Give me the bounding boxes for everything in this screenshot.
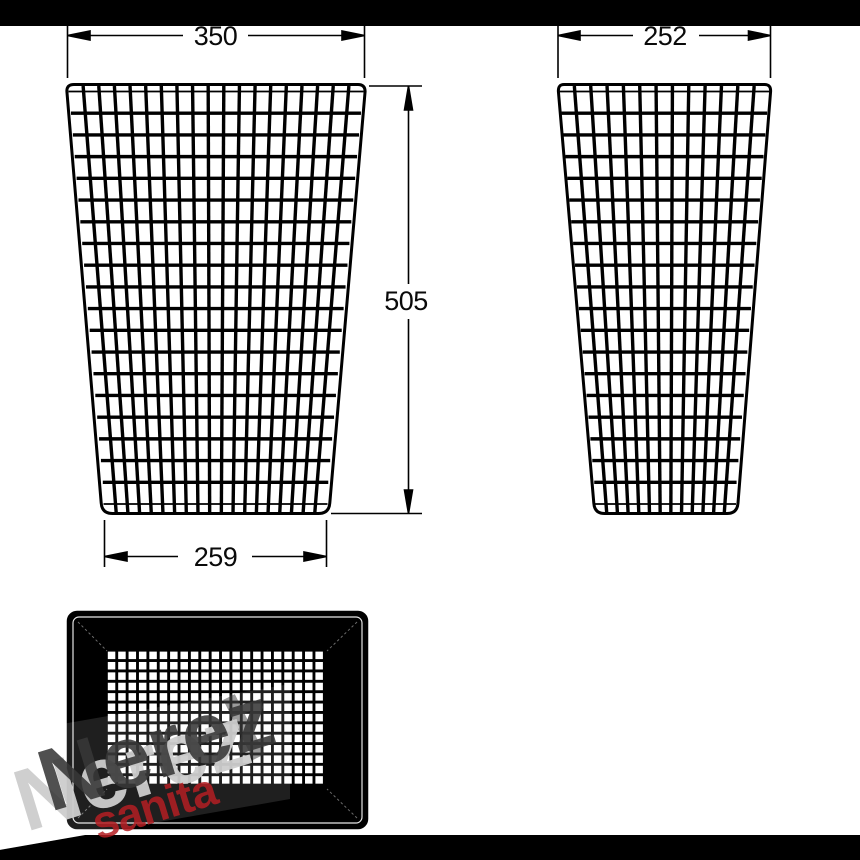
- mesh-hole: [170, 662, 178, 670]
- mesh-hole: [232, 652, 240, 660]
- mesh-hole: [129, 683, 137, 691]
- mesh-hole: [305, 652, 313, 660]
- mesh-hole: [160, 662, 168, 670]
- mesh-hole: [139, 652, 147, 660]
- mesh-hole: [295, 683, 303, 691]
- mesh-hole: [295, 766, 303, 774]
- mesh-hole: [118, 693, 126, 701]
- dimension-side-top-width: 252: [558, 21, 771, 78]
- mesh-hole: [305, 724, 313, 732]
- mesh-hole: [139, 683, 147, 691]
- mesh-hole: [129, 693, 137, 701]
- mesh-hole: [295, 704, 303, 712]
- mesh-hole: [149, 652, 157, 660]
- mesh-hole: [139, 672, 147, 680]
- front-view-basket: [67, 85, 365, 514]
- mesh-hole: [274, 652, 282, 660]
- mesh-hole: [315, 766, 323, 774]
- arrowhead-right-icon: [342, 31, 365, 40]
- mesh-hole: [264, 662, 272, 670]
- mesh-hole: [180, 672, 188, 680]
- mesh-wire: [208, 86, 209, 513]
- mesh-hole: [305, 662, 313, 670]
- mesh-wire: [671, 86, 673, 513]
- mesh-hole: [315, 755, 323, 763]
- mesh-hole: [108, 683, 116, 691]
- mesh-hole: [191, 652, 199, 660]
- mesh-hole: [315, 652, 323, 660]
- mesh-hole: [191, 672, 199, 680]
- mesh-hole: [295, 662, 303, 670]
- mesh-hole: [253, 652, 261, 660]
- mesh-hole: [305, 672, 313, 680]
- mesh-hole: [305, 776, 313, 784]
- arrowhead-right-icon: [749, 31, 771, 40]
- mesh-hole: [118, 662, 126, 670]
- mesh-hole: [295, 745, 303, 753]
- arrowhead-left-icon: [105, 552, 128, 561]
- mesh-hole: [108, 693, 116, 701]
- dimension-front-top-width: 350: [68, 21, 365, 78]
- mesh-hole: [315, 724, 323, 732]
- mesh-hole: [284, 652, 292, 660]
- mesh-hole: [160, 672, 168, 680]
- mesh-hole: [201, 652, 209, 660]
- mesh-hole: [108, 662, 116, 670]
- mesh-hole: [232, 662, 240, 670]
- mesh-hole: [295, 755, 303, 763]
- mesh-hole: [160, 652, 168, 660]
- mesh-hole: [160, 683, 168, 691]
- dimension-label-height: 505: [384, 286, 428, 316]
- mesh-hole: [180, 662, 188, 670]
- mesh-hole: [201, 662, 209, 670]
- mesh-hole: [305, 714, 313, 722]
- mesh-hole: [305, 745, 313, 753]
- mesh-hole: [212, 662, 220, 670]
- mesh-hole: [274, 672, 282, 680]
- mesh-hole: [243, 652, 251, 660]
- mesh-hole: [284, 672, 292, 680]
- arrowhead-down-icon: [405, 490, 413, 514]
- arrowhead-right-icon: [304, 552, 327, 561]
- mesh-hole: [222, 662, 230, 670]
- mesh-hole: [264, 672, 272, 680]
- mesh-hole: [295, 724, 303, 732]
- waste-basket-drawing: 350 252 505: [0, 0, 860, 860]
- mesh-hole: [118, 652, 126, 660]
- dimension-label-front-top-width: 350: [194, 21, 238, 51]
- side-view-basket: [558, 85, 770, 514]
- mesh-hole: [170, 652, 178, 660]
- mesh-hole: [295, 735, 303, 743]
- mesh-hole: [264, 652, 272, 660]
- mesh-hole: [305, 766, 313, 774]
- mesh-hole: [305, 683, 313, 691]
- mesh-hole: [315, 735, 323, 743]
- mesh-hole: [315, 662, 323, 670]
- mesh-hole: [139, 662, 147, 670]
- mesh-hole: [315, 693, 323, 701]
- mesh-hole: [305, 693, 313, 701]
- mesh-hole: [129, 652, 137, 660]
- mesh-hole: [315, 672, 323, 680]
- mesh-hole: [212, 652, 220, 660]
- mesh-hole: [295, 693, 303, 701]
- mesh-hole: [284, 662, 292, 670]
- mesh-hole: [274, 662, 282, 670]
- mesh-hole: [149, 672, 157, 680]
- mesh-hole: [315, 683, 323, 691]
- mesh-hole: [108, 652, 116, 660]
- mesh-hole: [180, 652, 188, 660]
- mesh-hole: [108, 672, 116, 680]
- arrowhead-left-icon: [68, 31, 91, 40]
- mesh-hole: [315, 745, 323, 753]
- arrowhead-left-icon: [558, 31, 580, 40]
- mesh-hole: [315, 704, 323, 712]
- dimension-label-front-bottom-width: 259: [194, 542, 238, 572]
- mesh-hole: [295, 776, 303, 784]
- mesh-hole: [305, 704, 313, 712]
- dimension-label-side-top-width: 252: [643, 21, 687, 51]
- mesh-hole: [149, 662, 157, 670]
- mesh-hole: [295, 714, 303, 722]
- mesh-hole: [118, 683, 126, 691]
- dimension-front-bottom-width: 259: [105, 520, 327, 572]
- mesh-hole: [191, 662, 199, 670]
- mesh-hole: [170, 672, 178, 680]
- technical-drawing-page: 350 252 505: [0, 0, 860, 860]
- mesh-hole: [295, 652, 303, 660]
- mesh-hole: [149, 683, 157, 691]
- mesh-hole: [295, 672, 303, 680]
- mesh-hole: [305, 735, 313, 743]
- mesh-hole: [129, 672, 137, 680]
- mesh-hole: [129, 662, 137, 670]
- mesh-hole: [222, 652, 230, 660]
- mesh-hole: [118, 672, 126, 680]
- mesh-hole: [201, 672, 209, 680]
- mesh-hole: [305, 755, 313, 763]
- arrowhead-up-icon: [405, 86, 413, 110]
- mesh-hole: [315, 714, 323, 722]
- mesh-hole: [315, 776, 323, 784]
